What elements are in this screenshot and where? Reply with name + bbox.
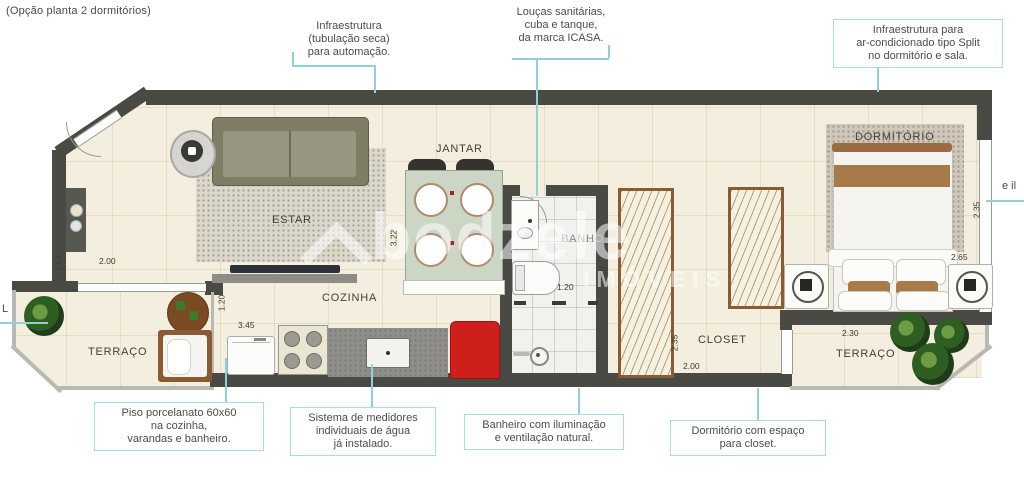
dim-estar-largura: 2.00 [99,256,116,266]
bath-sink [511,200,539,250]
counter [328,328,448,377]
room-label-terraco-esq: TERRAÇO [88,346,147,358]
callout-split: Infraestrutura para ar-condicionado tipo… [833,19,1003,68]
stove [278,325,328,375]
room-label-jantar: JANTAR [436,143,483,155]
door-closet-terrace [781,330,793,374]
window-terrace-left [78,283,206,292]
wardrobe-right [728,187,784,309]
sink [366,338,410,368]
callout-automacao: Infraestrutura (tubulação seca) para aut… [295,20,403,59]
tv-panel [230,265,340,273]
callout-loucas: Louças sanitárias, cuba e tanque, da mar… [505,6,617,45]
leader-piso-v [225,358,227,402]
nightstand-left [784,264,829,309]
shower-drain [530,347,549,366]
room-label-dormitorio: DORMITÓRIO [855,131,935,143]
bed-headboard [832,143,952,152]
dim-closet-altura: 2.35 [669,335,679,352]
callout-piso: Piso porcelanato 60x60 na cozinha, varan… [94,402,264,451]
dim-estar-altura: 1.54 [53,255,63,272]
plant [912,343,954,385]
page-title: (Opção planta 2 dormitórios) [6,5,151,17]
wall-bath-right [596,185,608,387]
bed-blanket-stripe [834,165,950,187]
dim-jantar-altura: 3.22 [388,230,398,247]
leader-banheiro-v [578,388,580,414]
room-label-closet: CLOSET [698,334,747,346]
terrace-table [167,292,209,334]
dim-banho-altura: 2.20 [597,267,607,284]
wall-top [146,90,992,105]
callout-banheiro: Banheiro com iluminação e ventilação nat… [464,414,624,450]
dim-dormitorio-largura: 2.65 [951,252,968,262]
toilet [512,261,560,295]
dim-banho-largura: 1.20 [557,282,574,292]
dining-bench [403,280,505,295]
shower-bar [513,352,530,356]
wall-terrace-left-a [12,281,78,292]
washer [227,336,275,375]
nightstand-right [948,264,993,309]
leader-loucas-v [536,58,538,196]
callout-right-partial: e il [1002,180,1024,193]
round-armchair [170,130,216,178]
shower-divider [514,301,526,305]
room-label-estar: ESTAR [272,214,312,226]
dim-cozinha-largura: 3.45 [238,320,255,330]
room-label-terraco-dir: TERRAÇO [836,348,895,360]
wardrobe-left [618,188,674,378]
dining-table [405,170,503,284]
leader-medidores-v [371,364,373,407]
leader-automacao-v [374,65,376,93]
railing-terrace-right-side [985,325,989,350]
sofa [212,117,369,186]
dim-closet-largura: 2.00 [683,361,700,371]
callout-left-partial: L [2,303,16,316]
leader-automacao-h [292,65,375,67]
floorplan-canvas: (Opção planta 2 dormitórios) [0,0,1024,501]
leader-loucas-stub [608,45,610,58]
terrace-armchair [158,330,212,382]
room-label-cozinha: COZINHA [322,292,377,304]
railing-terrace-right-bottom [790,386,940,390]
leader-automacao-stub [292,52,294,65]
railing-terrace-left-bottom [57,386,214,390]
dim-terraco-dir-largura: 2.30 [842,328,859,338]
sideboard [66,188,86,252]
wall-bath-top-a [500,185,520,196]
tv-rack [212,274,357,283]
dim-terraco-esq-altura: 1.20 [216,295,226,312]
leader-left-partial [0,322,48,324]
plant [24,296,64,336]
wall-bath-top-b [546,185,608,196]
bed-pillow [838,291,892,311]
callout-dormitorio-closet: Dormitório com espaço para closet. [670,420,826,456]
leader-right-partial [986,200,1024,202]
room-label-banho: BANHO [561,233,604,245]
leader-dormitorio-v [757,388,759,420]
railing-terrace-left-side [12,290,16,348]
callout-medidores: Sistema de medidores individuais de água… [290,407,436,456]
dim-dormitorio-altura: 2.35 [971,202,981,219]
shower-divider [588,301,598,305]
bed-pillow [896,291,950,311]
bed [833,146,953,312]
red-cabinet [450,321,500,379]
wall-right-bottom [977,310,992,325]
wall-right-top [977,90,992,140]
shower-divider [552,301,566,305]
leader-loucas-h [512,58,609,60]
wall-terrace-left-b [205,281,223,295]
